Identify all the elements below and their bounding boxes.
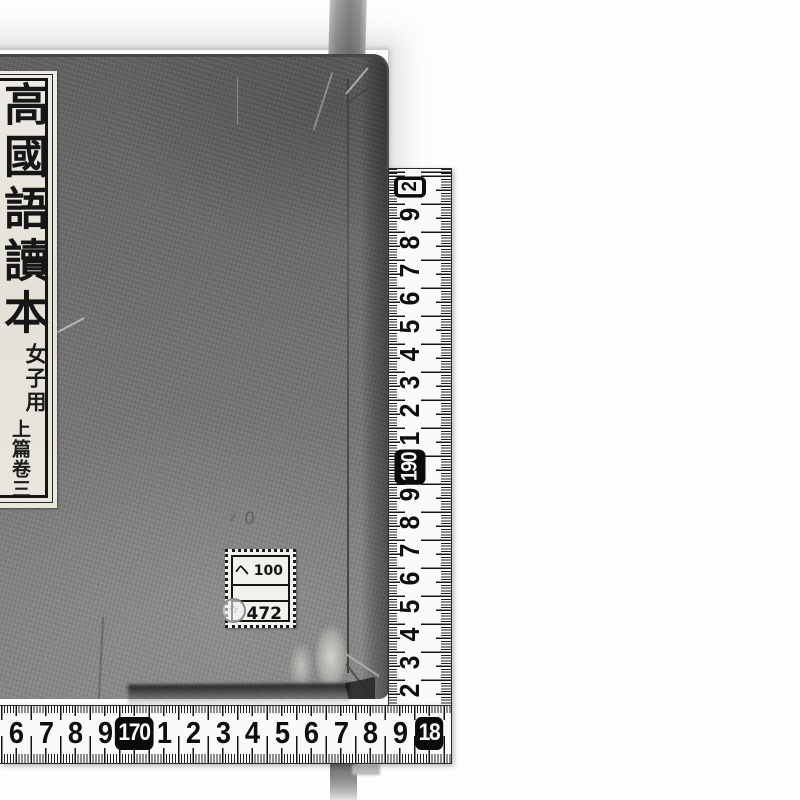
worn-patch [314, 623, 348, 691]
tape-number: 3 [394, 657, 426, 670]
tape-number: 4 [245, 715, 259, 751]
call-number-line2 [233, 586, 288, 602]
tape-number: 6 [394, 573, 426, 586]
tape-number: 4 [394, 629, 426, 642]
tape-number-boxed: 2 [394, 176, 426, 197]
tape-number: 6 [394, 293, 426, 306]
cover-crease [313, 72, 333, 130]
call-number-table: ヘ 100 ☆ 472 [231, 555, 290, 622]
binding-strap-top [328, 0, 367, 62]
tape-number: 7 [394, 265, 426, 278]
call-number-label: ヘ 100 ☆ 472 [225, 549, 296, 628]
measuring-tape-vertical: 298765432119098765432 [388, 168, 452, 705]
tape-number: 2 [394, 405, 426, 418]
tape-number: 9 [97, 715, 111, 751]
tape-number: 9 [394, 209, 426, 222]
tape-number-boxed: 190 [395, 449, 426, 484]
tape-number: 5 [394, 601, 426, 614]
tape-number-boxed: 18 [415, 717, 443, 750]
title-volume-note: 上篇卷三 [7, 419, 34, 499]
tape-number: 3 [215, 715, 229, 751]
book-cover: 高國語讀本 女子用 上篇卷三 0 ヘ 100 ☆ 472 [0, 54, 389, 699]
page-edge [361, 57, 387, 699]
tape-number: 2 [394, 685, 426, 698]
tape-number: 9 [392, 715, 406, 751]
tape-number: 2 [186, 715, 200, 751]
tape-number: 8 [363, 715, 377, 751]
book-bottom-shadow [128, 683, 350, 707]
tape-number: 8 [68, 715, 82, 751]
cover-crease [54, 317, 85, 334]
call-number-line1: ヘ 100 [233, 557, 288, 586]
tape-number: 7 [394, 545, 426, 558]
tape-number: 9 [394, 489, 426, 502]
tape-number: 5 [274, 715, 288, 751]
tape-number-boxed: 170 [115, 717, 153, 750]
stitch-thread [347, 79, 349, 673]
tape-number: 6 [9, 715, 23, 751]
tape-number: 8 [394, 237, 426, 250]
pencil-tick-mark [230, 513, 236, 522]
cover-crease [98, 617, 104, 699]
tape-number: 6 [304, 715, 318, 751]
tape-number: 4 [394, 349, 426, 362]
title-label: 高國語讀本 女子用 上篇卷三 [0, 71, 57, 508]
pencil-mark: 0 [243, 508, 257, 529]
strap-shadow [352, 764, 380, 775]
title-reader-note: 女子用 [20, 343, 50, 415]
tape-number: 1 [156, 715, 170, 751]
tape-number: 8 [394, 517, 426, 530]
tape-number: 5 [394, 321, 426, 334]
call-number-line3: ☆ 472 [233, 602, 288, 624]
call-number-value: 472 [247, 604, 283, 624]
title-text: 高國語讀本 [0, 81, 49, 341]
tape-number: 7 [333, 715, 347, 751]
cover-crease [237, 77, 238, 125]
tape-number: 1 [394, 433, 426, 446]
round-stamp-icon: ☆ [221, 598, 246, 623]
measuring-tape-horizontal: 678917012345678918 [0, 705, 452, 764]
tape-number: 3 [394, 377, 426, 390]
tape-number: 7 [38, 715, 52, 751]
book-scan-photo: 高國語讀本 女子用 上篇卷三 0 ヘ 100 ☆ 472 29876543211… [0, 0, 800, 800]
